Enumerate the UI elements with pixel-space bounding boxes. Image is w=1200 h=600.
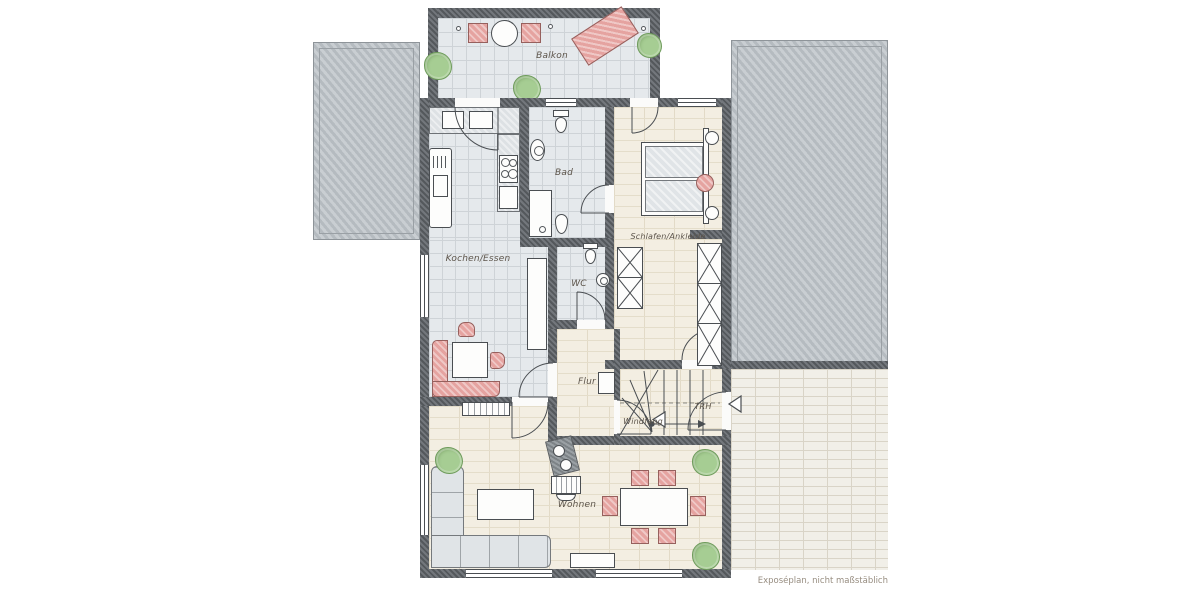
door-opening xyxy=(682,360,712,369)
window xyxy=(546,98,576,107)
window xyxy=(466,569,552,578)
door-opening xyxy=(577,320,605,329)
plant xyxy=(692,449,720,476)
kitchen-table xyxy=(452,342,488,378)
chair xyxy=(658,528,676,544)
chair xyxy=(690,496,706,516)
window xyxy=(420,465,429,535)
door-opening xyxy=(605,185,614,213)
terrace xyxy=(731,369,888,570)
toilet-tank xyxy=(553,110,569,117)
room-label-bad: Bad xyxy=(555,168,573,178)
nightstand xyxy=(705,131,719,145)
sofa xyxy=(431,535,551,568)
room-label-trh: TRH xyxy=(694,402,711,411)
chair xyxy=(458,322,475,337)
floor-plan: Balkon Bad Kochen/Essen Schlafen/Ankleid… xyxy=(0,0,1200,600)
room-label-wc: WC xyxy=(571,279,587,289)
plant xyxy=(435,447,463,474)
plant xyxy=(692,542,720,570)
wall-kitchen-hall xyxy=(548,240,557,445)
fireplace-pipe xyxy=(560,459,572,471)
terrace-wall xyxy=(731,361,888,369)
room-label-wohnen: Wohnen xyxy=(558,500,596,510)
burner xyxy=(509,159,517,167)
appliance-vents xyxy=(433,156,448,168)
wall-bath-wc xyxy=(520,238,614,247)
door-opening xyxy=(512,397,548,406)
stove-base xyxy=(551,476,581,494)
footer-note: Exposéplan, nicht maßstäblich xyxy=(690,576,888,586)
roof-area-left xyxy=(313,42,420,240)
door-opening xyxy=(455,98,500,107)
balcony-light xyxy=(456,26,461,31)
wall-hall-living xyxy=(548,436,731,445)
hall-shelf xyxy=(598,372,615,394)
lowboard xyxy=(570,553,615,568)
balcony-chair xyxy=(521,23,541,43)
oven-window xyxy=(433,175,448,197)
chair xyxy=(631,528,649,544)
entrance-opening xyxy=(722,392,731,430)
fireplace-pipe xyxy=(553,445,565,457)
mattress xyxy=(645,146,703,178)
shower-drain xyxy=(539,226,546,233)
door-opening xyxy=(614,400,620,434)
chair xyxy=(602,496,618,516)
nightstand xyxy=(705,206,719,220)
chair xyxy=(631,470,649,486)
mattress xyxy=(645,180,703,212)
room-label-windfang: Windfang xyxy=(623,417,663,426)
room-label-kochen-essen: Kochen/Essen xyxy=(446,254,511,264)
burner xyxy=(508,169,518,179)
sink-basin xyxy=(600,277,608,285)
coffee-table xyxy=(477,489,534,520)
chair xyxy=(658,470,676,486)
room-label-flur: Flur xyxy=(578,377,596,387)
plant xyxy=(637,33,662,58)
kitchen-sink xyxy=(469,111,493,129)
sink-basin xyxy=(534,146,544,156)
wall-bedroom-stair xyxy=(605,360,731,369)
balcony-light xyxy=(548,24,553,29)
door-opening xyxy=(630,98,658,107)
bed-cushion xyxy=(696,174,714,192)
room-label-balkon: Balkon xyxy=(536,51,568,61)
wall-kitchen-bath xyxy=(520,107,529,247)
roof-area-right xyxy=(731,40,888,368)
door-opening xyxy=(548,363,557,397)
kitchen-unit xyxy=(499,186,518,209)
balcony-table xyxy=(491,20,518,47)
kitchen-island xyxy=(527,258,547,350)
dining-table xyxy=(620,488,688,526)
window xyxy=(678,98,716,107)
chair xyxy=(490,352,505,369)
wall-bath-bedroom xyxy=(605,107,614,329)
radiator xyxy=(462,402,510,416)
kitchen-sink xyxy=(442,111,464,129)
window xyxy=(596,569,682,578)
plant xyxy=(424,52,452,80)
window xyxy=(420,255,429,317)
dining-bench xyxy=(432,381,500,397)
room-label-schlafen-ankleide: Schlafen/Ankleide xyxy=(630,232,705,241)
outer-wall-right xyxy=(722,98,731,578)
balcony-light xyxy=(641,26,646,31)
balcony-chair xyxy=(468,23,488,43)
